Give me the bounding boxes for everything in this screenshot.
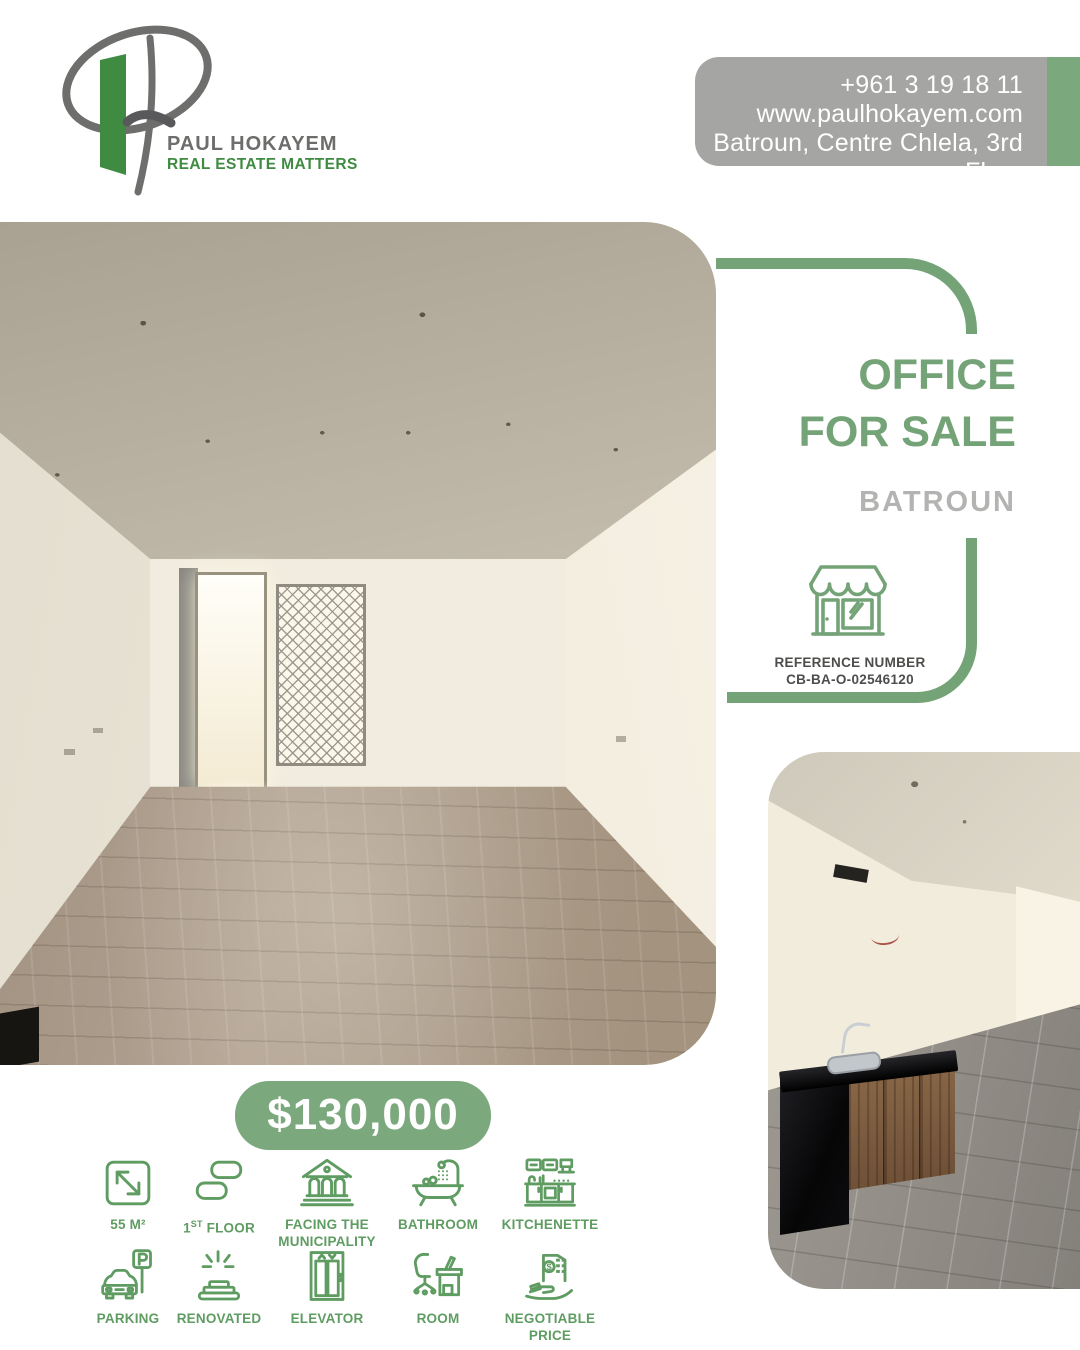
real-estate-flyer: PAUL HOKAYEM REAL ESTATE MATTERS +961 3 … [0,0,1080,1350]
feature-label: ROOM [417,1310,460,1327]
feature-label: BATHROOM [398,1216,478,1233]
negotiable-price-icon: $ [520,1246,580,1306]
elevator-icon [297,1246,357,1306]
area-icon [99,1154,157,1212]
feature-label: RENOVATED [177,1310,262,1327]
brand-tagline: REAL ESTATE MATTERS [167,156,358,174]
storefront-icon [799,560,897,648]
feature-label: FACING THEMUNICIPALITY [278,1216,375,1250]
listing-title: OFFICE FOR SALE [799,347,1016,461]
feature-label: NEGOTIABLEPRICE [505,1310,596,1344]
contact-website: www.paulhokayem.com [695,100,1023,129]
feature-municipality: FACING THEMUNICIPALITY [267,1154,387,1250]
listing-location: BATROUN [859,486,1016,519]
photo-socket [93,728,103,733]
renovated-icon [189,1246,249,1306]
photo-door-opening [195,572,267,789]
reference-block: REFERENCE NUMBER CB-BA-O-02546120 [750,654,950,688]
feature-floor: 1ST FLOOR [159,1154,279,1237]
contact-accent-strip [1047,57,1080,166]
kitchen-vent [833,865,869,884]
listing-title-line2: FOR SALE [799,404,1016,461]
feature-label: ELEVATOR [291,1310,364,1327]
kitchenette-icon [521,1154,579,1212]
floor-icon [190,1154,248,1212]
photo-furniture-corner [0,1007,39,1065]
reference-number: CB-BA-O-02546120 [750,671,950,688]
feature-label: 55 M² [110,1216,146,1233]
bathroom-icon [409,1154,467,1212]
feature-kitchenette: KITCHENETTE [490,1154,610,1233]
panel-frame-top [716,258,977,334]
parking-icon [98,1246,158,1306]
photo-window-lattice [276,584,366,765]
feature-renovated: RENOVATED [159,1246,279,1327]
feature-elevator: ELEVATOR [267,1246,387,1327]
feature-negotiable: $ NEGOTIABLEPRICE [490,1246,610,1344]
kitchen-wire [870,925,900,946]
contact-box: +961 3 19 18 11 www.paulhokayem.com Batr… [695,57,1047,166]
contact-address: Batroun, Centre Chlela, 3rd Floor [695,129,1023,187]
kitchenette-photo [768,752,1080,1289]
reference-label: REFERENCE NUMBER [750,654,950,671]
listing-title-line1: OFFICE [799,347,1016,404]
feature-label: KITCHENETTE [502,1216,599,1233]
brand-name: PAUL HOKAYEM [167,133,338,156]
feature-label: PARKING [97,1310,160,1327]
feature-label: 1ST FLOOR [183,1216,255,1237]
contact-phone: +961 3 19 18 11 [695,71,1023,100]
svg-text:$: $ [546,1262,552,1272]
feature-room: ROOM [378,1246,498,1327]
feature-bathroom: BATHROOM [378,1154,498,1233]
photo-socket [616,736,626,742]
photo-socket [64,749,75,755]
room-icon [408,1246,468,1306]
municipality-icon [298,1154,356,1212]
kitchen-faucet [841,1020,870,1056]
price-badge: $130,000 [235,1081,491,1150]
office-photo [0,222,716,1065]
